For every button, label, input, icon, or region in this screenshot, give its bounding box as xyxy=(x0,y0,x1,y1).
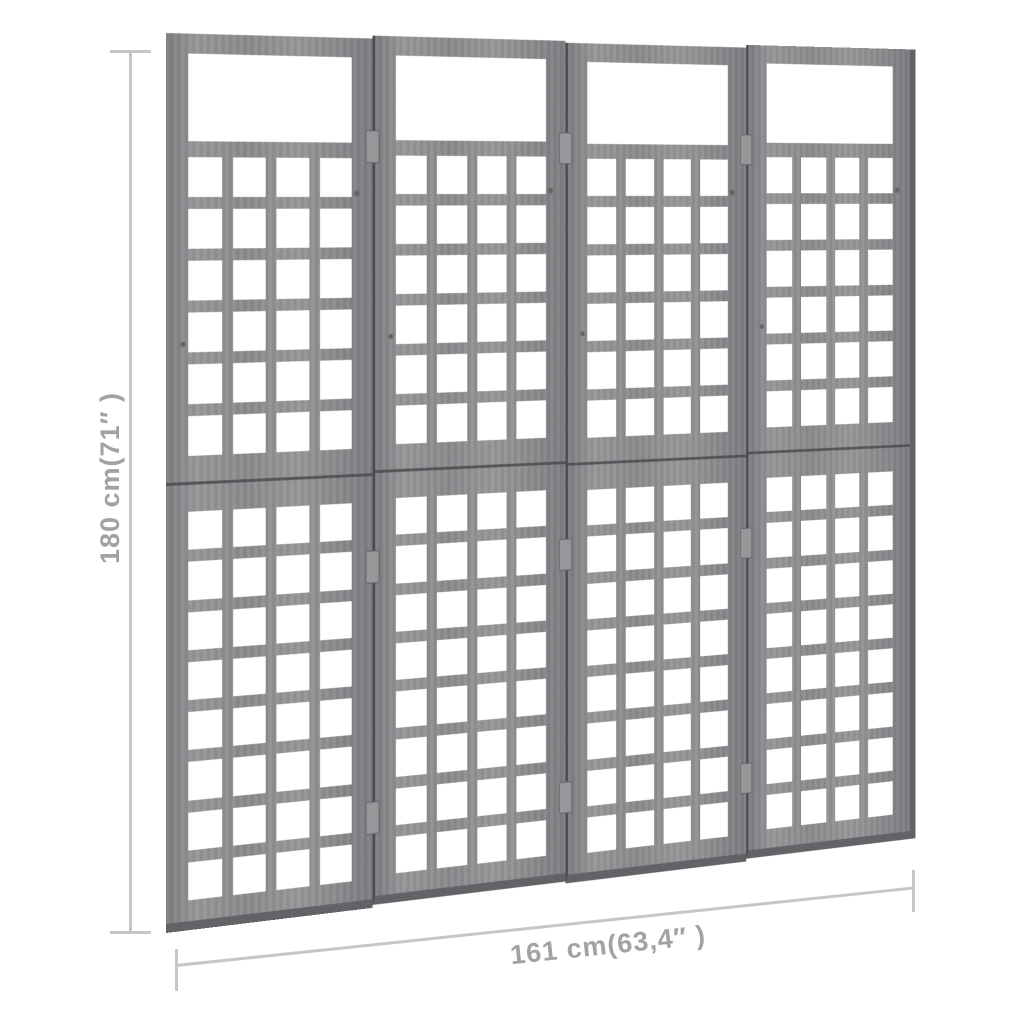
lattice-cell xyxy=(188,312,222,353)
lattice-cell xyxy=(233,311,266,351)
panel-junction-rail xyxy=(568,431,746,491)
lattice-cell xyxy=(835,740,860,777)
panel-lattice-upper xyxy=(587,159,728,438)
lattice-cell xyxy=(320,649,352,689)
lattice-cell xyxy=(835,250,860,286)
lattice-cell xyxy=(320,360,352,400)
lattice-cell xyxy=(188,363,222,404)
lattice-cell xyxy=(517,490,546,528)
lattice-cell xyxy=(587,351,616,389)
lattice-cell xyxy=(663,302,691,339)
lattice-cell xyxy=(700,619,728,656)
lattice-cell xyxy=(437,354,467,393)
panel-lattice-lower xyxy=(396,490,546,873)
panel-lattice-upper xyxy=(767,157,893,427)
divider-panel xyxy=(746,45,915,859)
lattice-cell xyxy=(700,574,728,611)
lattice-cell xyxy=(188,209,222,249)
panel-lattice-upper xyxy=(396,156,546,445)
lattice-cell xyxy=(626,159,654,196)
panel-hinge xyxy=(740,762,752,794)
lattice-cell xyxy=(517,820,546,859)
lattice-cell xyxy=(587,768,616,807)
lattice-cell xyxy=(835,651,860,687)
lattice-cell xyxy=(276,653,309,693)
lattice-cell xyxy=(517,537,546,575)
lattice-cell xyxy=(801,520,826,556)
lattice-cell xyxy=(437,494,467,532)
lattice-cell xyxy=(477,682,507,721)
lattice-cell xyxy=(320,844,352,885)
lattice-cell xyxy=(188,709,222,750)
lattice-cell xyxy=(663,806,691,844)
height-dimension-cap-top xyxy=(110,50,151,53)
panel-lattice-upper xyxy=(188,157,351,456)
lattice-cell xyxy=(233,157,266,197)
lattice-cell xyxy=(396,737,427,777)
lattice-cell xyxy=(767,567,792,603)
lattice-cell xyxy=(517,726,546,765)
lattice-cell xyxy=(868,295,892,331)
lattice-cell xyxy=(233,607,266,647)
divider-panel xyxy=(373,36,566,905)
lattice-cell xyxy=(868,250,892,286)
lattice-cell xyxy=(700,665,728,702)
lattice-cell xyxy=(868,781,892,818)
lattice-cell xyxy=(835,388,860,424)
lattice-cell xyxy=(437,733,467,772)
lattice-cell xyxy=(835,342,860,378)
lattice-cell xyxy=(868,387,892,423)
lattice-cell xyxy=(233,804,266,845)
lattice-cell xyxy=(801,157,826,193)
lattice-cell xyxy=(276,555,309,595)
lattice-cell xyxy=(868,648,892,684)
lattice-cell xyxy=(801,654,826,690)
lattice-cell xyxy=(801,475,826,511)
lattice-cell xyxy=(437,638,467,677)
lattice-cell xyxy=(276,310,309,350)
divider-panel xyxy=(566,43,747,884)
lattice-cell xyxy=(767,747,792,784)
lattice-cell xyxy=(188,859,222,901)
lattice-cell xyxy=(801,297,826,333)
lattice-cell xyxy=(626,764,654,802)
lattice-cell xyxy=(437,829,467,869)
lattice-cell xyxy=(233,705,266,746)
lattice-cell xyxy=(700,756,728,794)
lattice-cell xyxy=(626,207,654,244)
lattice-cell xyxy=(396,305,427,344)
lattice-cell xyxy=(587,303,616,341)
product-dimension-figure: 180 cm(71″ ) 161 cm(63,4″ ) xyxy=(0,0,1024,1024)
lattice-cell xyxy=(587,814,616,853)
lattice-cell xyxy=(320,259,352,298)
lattice-cell xyxy=(663,714,691,752)
height-dimension-label: 180 cm(71″ ) xyxy=(94,336,126,620)
lattice-cell xyxy=(517,584,546,622)
width-dimension-cap-right xyxy=(912,870,915,912)
lattice-cell xyxy=(767,204,792,240)
lattice-cell xyxy=(233,755,266,796)
lattice-cell xyxy=(767,657,792,694)
lattice-cell xyxy=(396,405,427,445)
lattice-cell xyxy=(626,486,654,523)
lattice-cell xyxy=(801,204,826,240)
panel-lattice-lower xyxy=(188,503,351,900)
panel-junction-rail xyxy=(166,448,373,513)
lattice-cell xyxy=(233,260,266,300)
lattice-cell xyxy=(868,204,892,239)
lattice-cell xyxy=(663,349,691,386)
lattice-cell xyxy=(587,159,616,196)
lattice-cell xyxy=(477,587,507,625)
lattice-cell xyxy=(233,557,266,597)
lattice-cell xyxy=(517,632,546,670)
lattice-cell xyxy=(868,737,892,773)
lattice-cell xyxy=(587,400,616,438)
panel-hinge xyxy=(740,134,752,165)
lattice-cell xyxy=(320,410,352,450)
lattice-cell xyxy=(320,209,352,248)
lattice-cell xyxy=(437,403,467,442)
lattice-cell xyxy=(437,156,467,194)
panel-lattice-lower xyxy=(587,483,728,853)
panel-top-window xyxy=(396,55,546,141)
lattice-cell xyxy=(587,675,616,713)
lattice-cell xyxy=(868,560,892,595)
lattice-cell xyxy=(663,622,691,659)
lattice-cell xyxy=(188,659,222,700)
lattice-cell xyxy=(233,413,266,454)
lattice-cell xyxy=(626,579,654,616)
lattice-cell xyxy=(835,696,860,732)
lattice-cell xyxy=(626,533,654,570)
lattice-cell xyxy=(396,206,427,245)
room-divider xyxy=(166,33,916,933)
lattice-cell xyxy=(663,530,691,567)
lattice-cell xyxy=(188,260,222,300)
lattice-cell xyxy=(700,348,728,385)
panel-top-window xyxy=(767,63,893,143)
lattice-cell xyxy=(767,522,792,558)
lattice-cell xyxy=(868,471,892,506)
lattice-cell xyxy=(276,751,309,792)
lattice-cell xyxy=(587,255,616,293)
lattice-cell xyxy=(276,505,309,544)
lattice-cell xyxy=(587,488,616,525)
lattice-cell xyxy=(767,702,792,739)
lattice-cell xyxy=(188,809,222,851)
lattice-cell xyxy=(437,542,467,580)
lattice-cell xyxy=(320,309,352,349)
lattice-cell xyxy=(868,158,892,193)
panel-junction-rail xyxy=(748,421,909,478)
lattice-cell xyxy=(320,503,352,542)
lattice-cell xyxy=(663,576,691,613)
panel-hinge xyxy=(559,132,572,164)
lattice-cell xyxy=(276,702,309,742)
lattice-cell xyxy=(437,205,467,243)
panel-lattice-lower xyxy=(767,471,893,829)
lattice-cell xyxy=(663,397,691,435)
lattice-cell xyxy=(801,788,826,825)
lattice-cell xyxy=(477,729,507,768)
lattice-cell xyxy=(477,205,507,243)
panel-hinge xyxy=(740,527,752,559)
lattice-cell xyxy=(700,802,728,840)
lattice-cell xyxy=(626,625,654,663)
lattice-cell xyxy=(188,610,222,650)
lattice-cell xyxy=(320,747,352,787)
lattice-cell xyxy=(477,402,507,441)
lattice-cell xyxy=(767,297,792,334)
lattice-cell xyxy=(276,361,309,401)
lattice-cell xyxy=(276,259,309,299)
divider-panel xyxy=(166,33,373,933)
lattice-cell xyxy=(517,156,546,194)
lattice-cell xyxy=(188,759,222,800)
lattice-cell xyxy=(801,389,826,426)
lattice-cell xyxy=(517,303,546,341)
lattice-cell xyxy=(233,854,266,895)
lattice-cell xyxy=(801,699,826,736)
lattice-cell xyxy=(801,609,826,645)
panel-hinge xyxy=(559,538,572,571)
lattice-cell xyxy=(396,689,427,728)
lattice-cell xyxy=(835,204,860,240)
lattice-cell xyxy=(700,483,728,519)
lattice-cell xyxy=(835,607,860,643)
lattice-cell xyxy=(767,792,792,829)
lattice-cell xyxy=(437,590,467,629)
lattice-cell xyxy=(663,668,691,705)
lattice-cell xyxy=(396,545,427,584)
height-dimension-cap-bottom xyxy=(110,931,151,934)
lattice-cell xyxy=(477,254,507,292)
lattice-cell xyxy=(517,400,546,439)
lattice-cell xyxy=(320,552,352,591)
lattice-cell xyxy=(396,496,427,534)
lattice-cell xyxy=(437,255,467,294)
panel-junction-rail xyxy=(375,437,565,499)
lattice-cell xyxy=(700,301,728,338)
lattice-cell xyxy=(835,473,860,508)
lattice-cell xyxy=(396,593,427,632)
lattice-cell xyxy=(700,396,728,433)
lattice-cell xyxy=(437,304,467,343)
panel-hinge xyxy=(366,801,380,835)
panel-top-window xyxy=(587,62,728,145)
lattice-cell xyxy=(276,209,309,248)
lattice-cell xyxy=(517,352,546,390)
lattice-cell xyxy=(663,254,691,291)
lattice-cell xyxy=(626,303,654,341)
lattice-cell xyxy=(626,255,654,292)
lattice-cell xyxy=(477,156,507,194)
lattice-cell xyxy=(587,721,616,759)
lattice-cell xyxy=(276,604,309,644)
lattice-cell xyxy=(437,781,467,821)
lattice-cell xyxy=(587,582,616,620)
width-dimension-cap-left xyxy=(175,949,178,991)
lattice-cell xyxy=(868,516,892,551)
lattice-cell xyxy=(320,158,352,197)
panel-hinge xyxy=(559,781,572,814)
lattice-cell xyxy=(700,528,728,565)
lattice-cell xyxy=(188,560,222,600)
lattice-cell xyxy=(700,254,728,291)
lattice-cell xyxy=(663,485,691,522)
lattice-cell xyxy=(233,362,266,402)
lattice-cell xyxy=(626,810,654,848)
lattice-cell xyxy=(477,777,507,816)
lattice-cell xyxy=(233,508,266,548)
lattice-cell xyxy=(517,205,546,243)
lattice-cell xyxy=(868,341,892,377)
height-dimension-line xyxy=(129,52,132,933)
lattice-cell xyxy=(700,207,728,244)
lattice-cell xyxy=(396,833,427,873)
lattice-cell xyxy=(320,698,352,738)
lattice-cell xyxy=(868,604,892,640)
lattice-cell xyxy=(396,785,427,825)
lattice-cell xyxy=(767,477,792,513)
lattice-cell xyxy=(517,254,546,292)
lattice-cell xyxy=(767,390,792,427)
lattice-cell xyxy=(233,656,266,696)
lattice-cell xyxy=(663,159,691,196)
lattice-cell xyxy=(835,518,860,554)
panel-hinge xyxy=(366,130,380,163)
lattice-cell xyxy=(801,250,826,286)
lattice-cell xyxy=(767,251,792,287)
lattice-cell xyxy=(835,785,860,822)
lattice-cell xyxy=(663,207,691,244)
lattice-cell xyxy=(477,824,507,864)
lattice-cell xyxy=(477,540,507,578)
lattice-cell xyxy=(276,849,309,890)
lattice-cell xyxy=(188,415,222,456)
lattice-cell xyxy=(835,562,860,598)
lattice-cell xyxy=(396,355,427,394)
lattice-cell xyxy=(663,760,691,798)
lattice-cell xyxy=(801,564,826,600)
lattice-cell xyxy=(320,601,352,640)
lattice-cell xyxy=(233,209,266,249)
lattice-cell xyxy=(587,535,616,572)
lattice-cell xyxy=(477,304,507,343)
lattice-cell xyxy=(517,679,546,718)
lattice-cell xyxy=(396,156,427,194)
lattice-cell xyxy=(188,157,222,197)
lattice-cell xyxy=(767,612,792,648)
lattice-cell xyxy=(801,343,826,379)
lattice-cell xyxy=(626,398,654,436)
panel-hinge xyxy=(366,550,380,584)
lattice-cell xyxy=(626,718,654,756)
lattice-cell xyxy=(767,344,792,381)
lattice-cell xyxy=(517,773,546,812)
lattice-cell xyxy=(396,641,427,680)
lattice-cell xyxy=(835,296,860,332)
lattice-cell xyxy=(700,159,728,195)
lattice-cell xyxy=(801,743,826,780)
lattice-cell xyxy=(276,412,309,452)
lattice-cell xyxy=(276,158,309,197)
lattice-cell xyxy=(477,353,507,392)
lattice-cell xyxy=(835,158,860,194)
lattice-cell xyxy=(700,711,728,748)
lattice-cell xyxy=(320,796,352,837)
lattice-cell xyxy=(437,685,467,724)
lattice-cell xyxy=(587,628,616,666)
lattice-cell xyxy=(626,671,654,709)
lattice-cell xyxy=(276,800,309,841)
lattice-cell xyxy=(868,692,892,728)
lattice-cell xyxy=(767,157,792,193)
panel-top-window xyxy=(188,54,351,143)
lattice-cell xyxy=(396,255,427,294)
lattice-cell xyxy=(477,492,507,530)
lattice-cell xyxy=(587,207,616,244)
lattice-cell xyxy=(477,635,507,674)
lattice-cell xyxy=(188,510,222,550)
lattice-cell xyxy=(626,350,654,388)
